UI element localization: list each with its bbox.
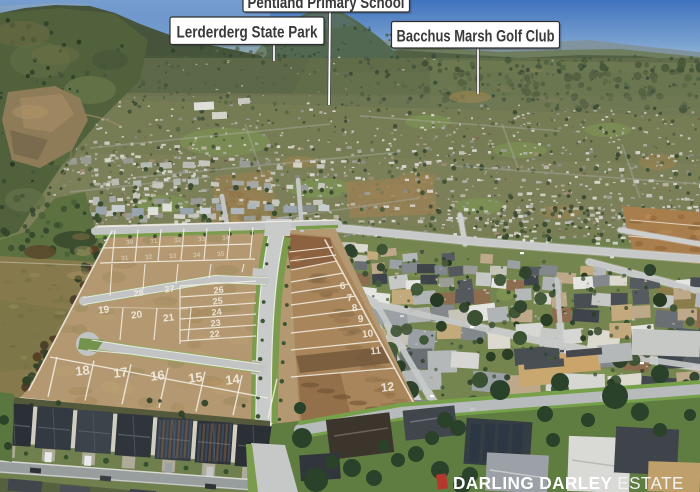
svg-text:18: 18	[74, 362, 90, 379]
svg-text:17: 17	[112, 364, 128, 381]
svg-text:31: 31	[121, 255, 129, 263]
svg-text:15: 15	[187, 369, 203, 386]
svg-text:DARLING DARLEY ESTATE: DARLING DARLEY ESTATE	[453, 473, 684, 492]
svg-text:28: 28	[133, 287, 144, 298]
svg-text:19: 19	[98, 304, 111, 316]
svg-text:12: 12	[380, 379, 395, 395]
svg-text:32: 32	[145, 254, 153, 262]
svg-text:27: 27	[164, 283, 175, 294]
svg-text:Bacchus Marsh Golf Club: Bacchus Marsh Golf Club	[397, 28, 555, 46]
svg-text:33: 33	[169, 253, 177, 261]
svg-text:25: 25	[212, 295, 223, 306]
svg-text:24: 24	[211, 306, 222, 317]
svg-text:10: 10	[362, 328, 375, 340]
svg-text:35: 35	[217, 251, 225, 259]
svg-text:23: 23	[210, 317, 221, 328]
svg-text:34: 34	[222, 235, 230, 243]
svg-text:30: 30	[126, 239, 134, 247]
svg-text:14: 14	[224, 371, 241, 388]
svg-text:Lerderderg State Park: Lerderderg State Park	[177, 24, 319, 42]
svg-text:26: 26	[213, 284, 224, 295]
svg-text:11: 11	[370, 345, 382, 357]
svg-text:21: 21	[163, 312, 176, 324]
svg-text:33: 33	[198, 236, 206, 244]
svg-text:Pentland Primary School: Pentland Primary School	[248, 0, 405, 12]
svg-text:34: 34	[193, 252, 201, 260]
svg-text:20: 20	[131, 309, 144, 321]
svg-text:22: 22	[209, 328, 220, 339]
svg-text:31: 31	[150, 238, 158, 246]
svg-text:32: 32	[174, 237, 182, 245]
svg-text:16: 16	[149, 367, 165, 384]
